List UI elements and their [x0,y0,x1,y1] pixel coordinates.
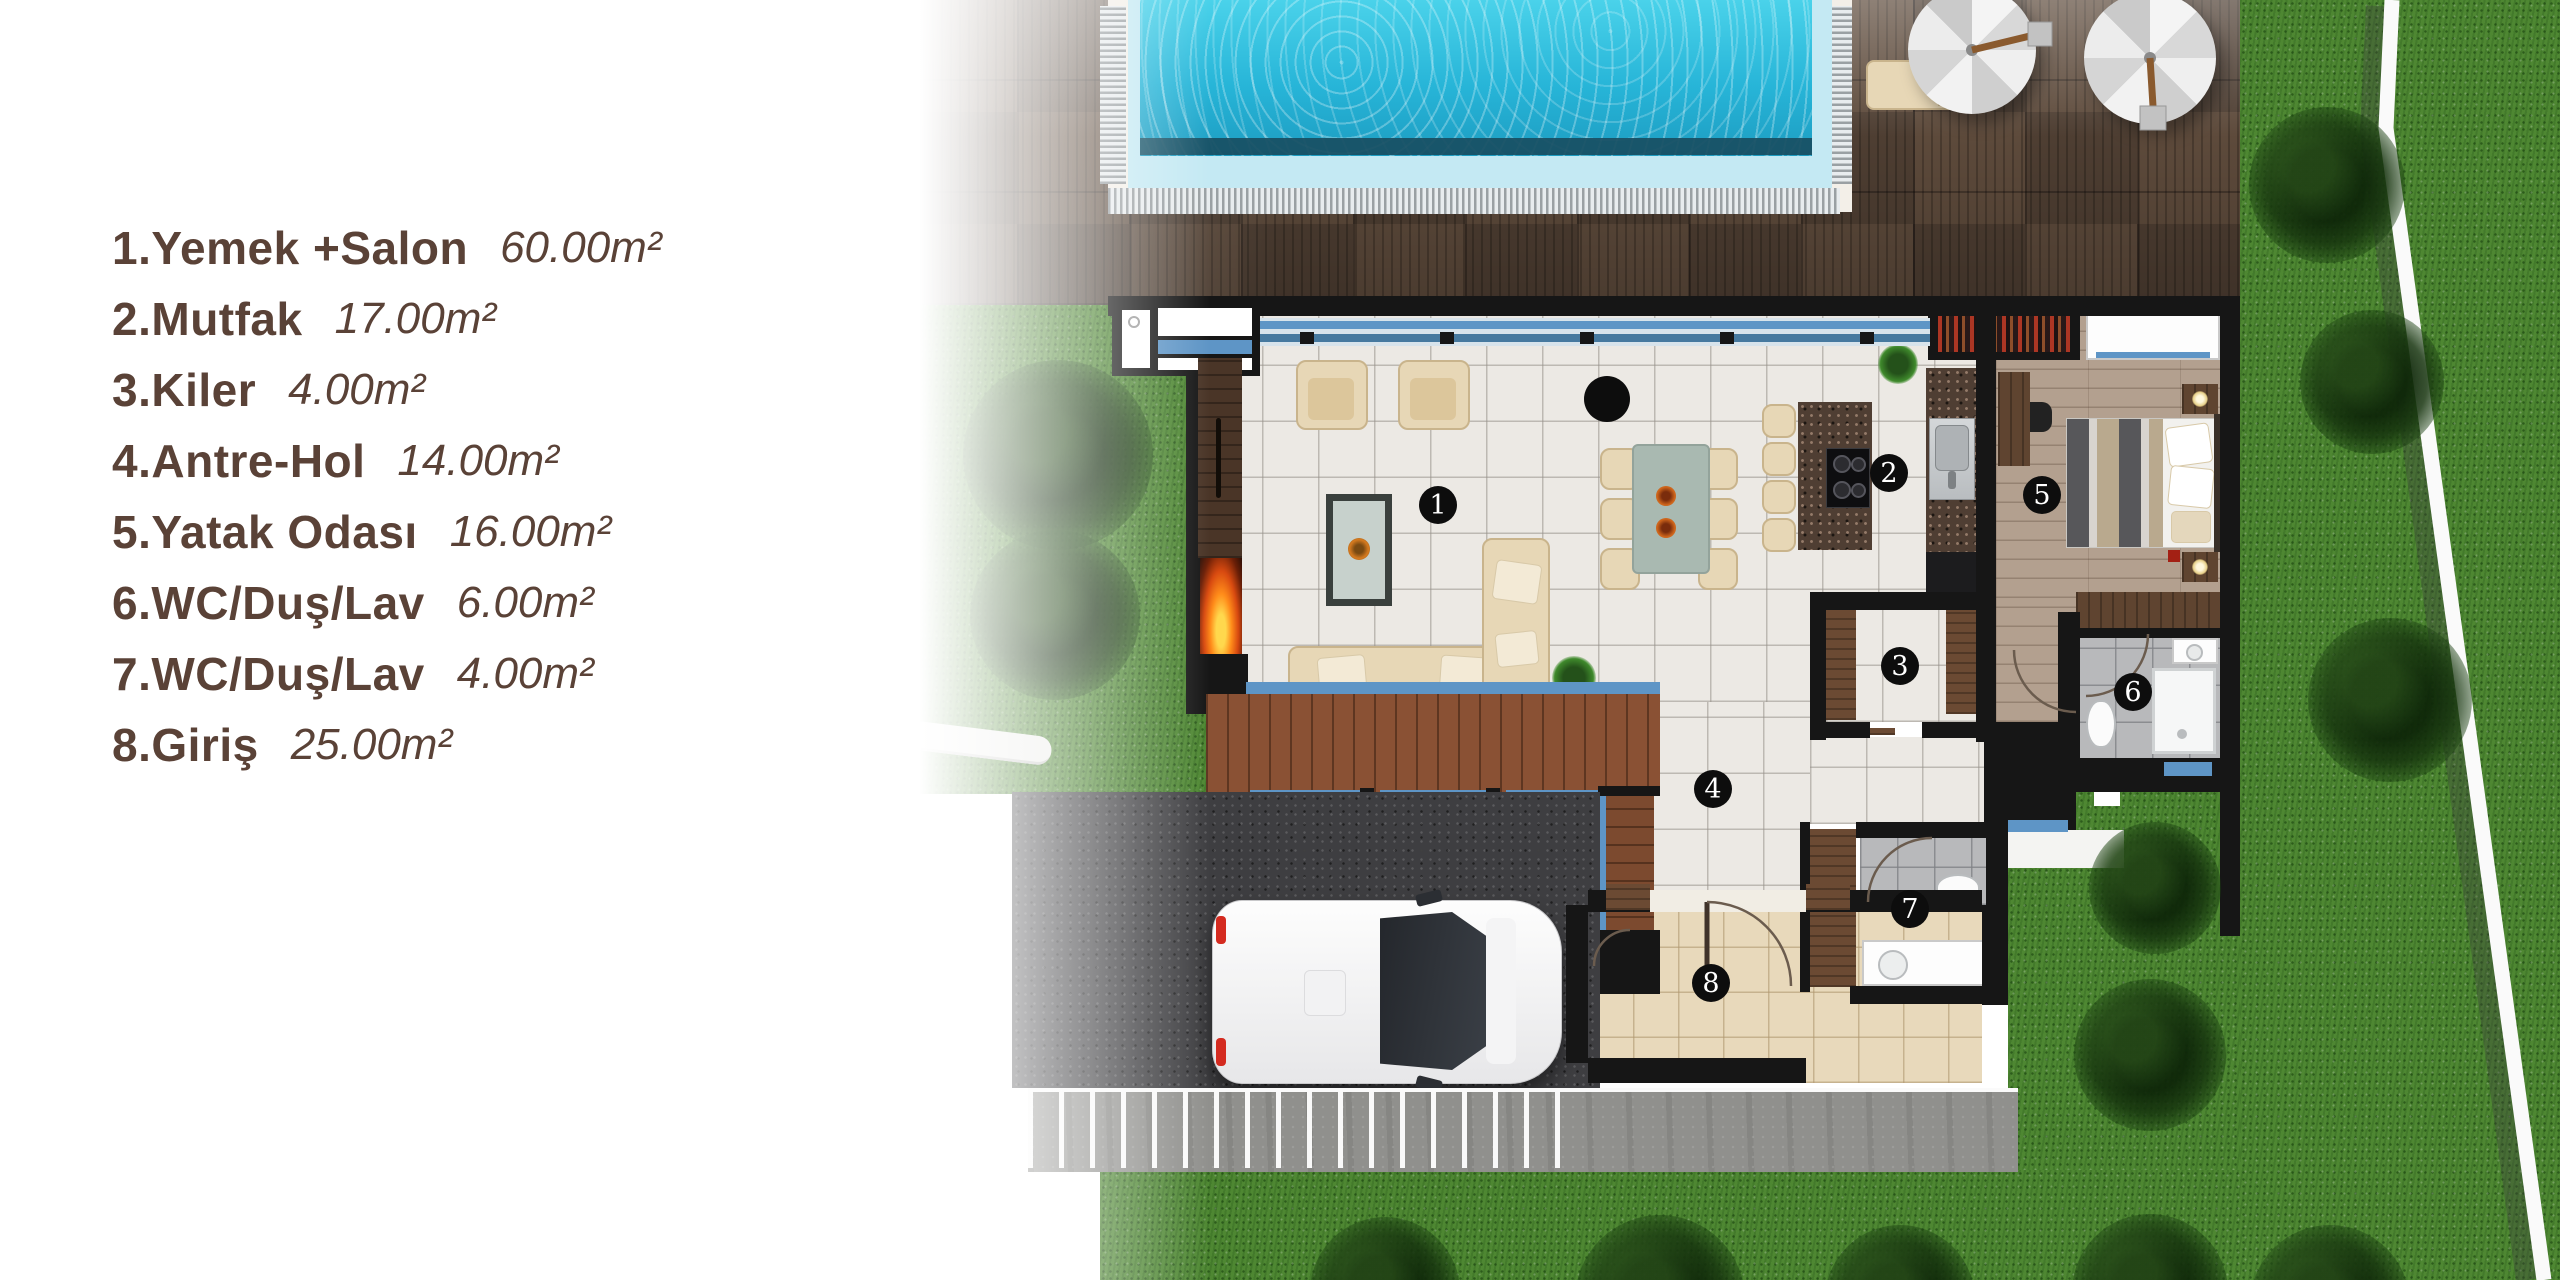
room-badge: 5 [2023,476,2061,514]
terrace-deck [1206,694,1660,792]
bath-sink [2172,638,2218,664]
room-badge: 6 [2114,673,2152,711]
legend-room-area: 4.00m² [288,365,425,415]
legend-room-name: Antre-Hol [151,434,365,488]
legend-room-name: Giriş [151,718,258,772]
kitchen-island [1798,402,1872,550]
entry-wall-east [1982,905,2008,1005]
north-window-band [1258,318,1930,346]
hall-connector-floor [1810,737,1984,824]
side-walkway [1606,796,1654,936]
legend-room-name: WC/Duş/Lav [151,647,424,701]
wall-north [1108,296,2240,316]
legend-row: 7.WC/Duş/Lav4.00m² [112,638,661,709]
car [1212,900,1560,1082]
nightstand [2182,384,2218,414]
legend-room-number: 7. [112,647,151,701]
umbrella-hub [2144,52,2156,64]
kitchen-sink [1929,418,1975,500]
entry-wall-west [1566,905,1588,1063]
legend-room-name: Yatak Odası [151,505,417,559]
toilet [2086,700,2116,748]
bar-stool [1762,442,1796,476]
tree [2089,822,2221,954]
legend-row: 8.Giriş25.00m² [112,709,661,780]
car-taillight [1216,1038,1226,1066]
armchair [1398,360,1470,430]
bath-vanity [1862,940,1986,986]
shower [2152,668,2216,754]
hall-south-window [2008,820,2068,832]
tree [2249,107,2405,263]
room-badge: 3 [1881,647,1919,685]
room-badge: 8 [1692,964,1730,1002]
legend-row: 6.WC/Duş/Lav6.00m² [112,567,661,638]
swimming-pool [1100,0,1854,220]
legend-room-number: 6. [112,576,151,630]
legend-room-number: 1. [112,221,151,275]
legend-room-number: 5. [112,505,151,559]
desk-chair [2030,402,2052,432]
pool-deep-edge [1140,138,1812,155]
wall-kitchen-bedroom [1976,316,1996,742]
wall-east [2220,296,2240,936]
wall-pantry-south [1810,722,1870,738]
armchair [1296,360,1368,430]
entry-door-leaf [1606,884,1650,910]
room-badge: 1 [1419,486,1457,524]
car-glass [1380,912,1486,1070]
tree [2308,618,2472,782]
pantry-cabinet [1826,610,1856,720]
pool-grate-bottom [1108,188,1840,214]
bar-stool [1762,404,1796,438]
legend-room-number: 2. [112,292,151,346]
legend-row: 4.Antre-Hol14.00m² [112,425,661,496]
legend-room-area: 60.00m² [500,223,661,273]
legend-room-number: 4. [112,434,151,488]
terrace-glass-north [1246,682,1660,694]
car-roof [1486,918,1516,1064]
legend-room-number: 8. [112,718,151,772]
entry-threshold [1650,890,1806,912]
legend-room-name: WC/Duş/Lav [151,576,424,630]
legend-room-name: Yemek +Salon [151,221,468,275]
tree [2074,979,2226,1131]
window-sill [2094,792,2120,806]
legend-room-number: 3. [112,363,151,417]
sofa-section-vertical [1482,538,1550,704]
walkway-cap-south [1598,930,1660,994]
legend-room-area: 14.00m² [397,436,558,486]
potted-plant [1878,344,1918,384]
wall-pantry-west [1810,610,1826,740]
legend-room-area: 6.00m² [457,578,594,628]
dining-table [1632,444,1710,574]
entry-door-leaf [1806,884,1850,910]
pantry-cabinet [1946,610,1976,714]
bed-accent [2168,550,2180,562]
bedroom-desk [1998,372,2030,466]
ceiling-spot [1584,376,1630,422]
legend-room-name: Mutfak [151,292,302,346]
legend-room-area: 25.00m² [291,720,452,770]
wall-pantry-south [1922,722,1990,738]
bar-stool [1762,480,1796,514]
legend-row: 5.Yatak Odası16.00m² [112,496,661,567]
cooktop [1826,448,1870,508]
legend-row: 1.Yemek +Salon60.00m² [112,212,661,283]
legend-room-name: Kiler [151,363,256,417]
legend-row: 3.Kiler4.00m² [112,354,661,425]
tree [2300,310,2444,454]
pool-water [1140,0,1812,156]
wall-bath6-north [2076,628,2220,638]
room-badge: 4 [1694,770,1732,808]
legend-row: 2.Mutfak17.00m² [112,283,661,354]
floor-plan: 1 2 3 4 5 6 7 8 1.Yemek +Salon60.00m² 2.… [0,0,2560,1280]
coffee-table [1326,494,1392,606]
nightstand [2182,552,2218,582]
legend-room-area: 4.00m² [457,649,594,699]
room-legend: 1.Yemek +Salon60.00m² 2.Mutfak17.00m² 3.… [112,212,661,780]
bar-stool [1762,518,1796,552]
wall-bath6-south [2058,758,2240,792]
entry-wall-south [1588,1058,1806,1083]
bed [2066,418,2216,548]
bath6-window [2164,762,2212,776]
legend-room-area: 17.00m² [335,294,496,344]
wall-pantry-north [1810,592,1990,610]
legend-room-area: 16.00m² [450,507,611,557]
bedroom-wardrobe [2076,592,2220,632]
room-badge: 2 [1870,454,1908,492]
umbrella-hub [1966,44,1978,56]
room-badge: 7 [1891,890,1929,928]
wall-corridor-south [1984,722,2076,830]
car-taillight [1216,916,1226,944]
walkway-cap-north [1598,786,1660,796]
